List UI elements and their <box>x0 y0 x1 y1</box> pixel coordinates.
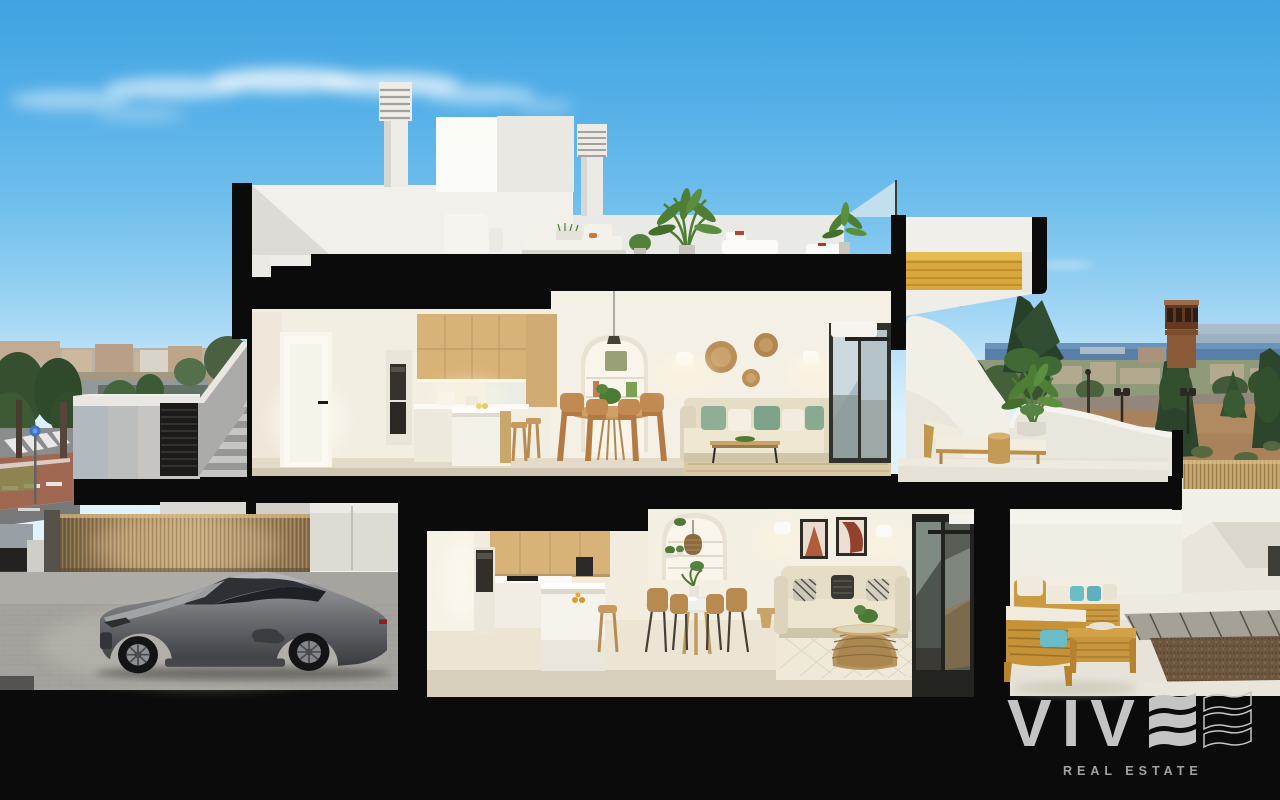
svg-text:REAL ESTATE: REAL ESTATE <box>1063 764 1203 778</box>
svg-text:VIV: VIV <box>1007 686 1145 761</box>
